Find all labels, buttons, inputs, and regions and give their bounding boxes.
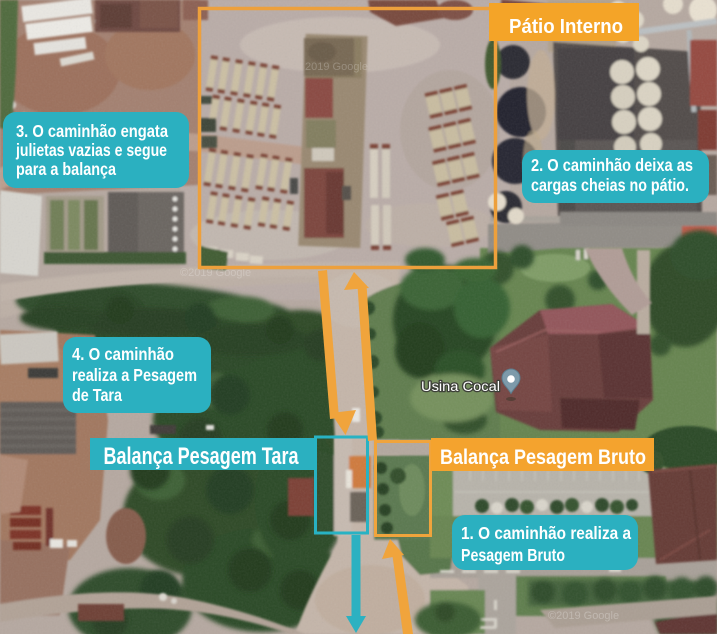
svg-text:julietas vazias e segue: julietas vazias e segue	[15, 140, 167, 160]
svg-text:©2019 Google: ©2019 Google	[548, 610, 619, 622]
svg-text:2019 Google: 2019 Google	[305, 61, 368, 73]
svg-text:4. O caminhão: 4. O caminhão	[72, 344, 174, 364]
svg-text:Pátio Interno: Pátio Interno	[509, 15, 623, 38]
svg-text:Pesagem Bruto: Pesagem Bruto	[461, 545, 565, 565]
svg-text:1. O caminhão realiza a: 1. O caminhão realiza a	[461, 523, 631, 543]
svg-text:2. O caminhão deixa as: 2. O caminhão deixa as	[531, 155, 693, 175]
svg-text:realiza a Pesagem: realiza a Pesagem	[72, 365, 197, 385]
svg-text:de Tara: de Tara	[72, 385, 122, 405]
svg-text:Balança Pesagem Bruto: Balança Pesagem Bruto	[440, 445, 646, 469]
svg-text:cargas cheias no pátio.: cargas cheias no pátio.	[531, 175, 689, 195]
svg-text:Usina Cocal: Usina Cocal	[421, 378, 500, 394]
svg-text:3. O caminhão engata: 3. O caminhão engata	[16, 121, 168, 141]
svg-text:para a balança: para a balança	[16, 159, 116, 179]
svg-text:Balança Pesagem Tara: Balança Pesagem Tara	[104, 443, 299, 470]
